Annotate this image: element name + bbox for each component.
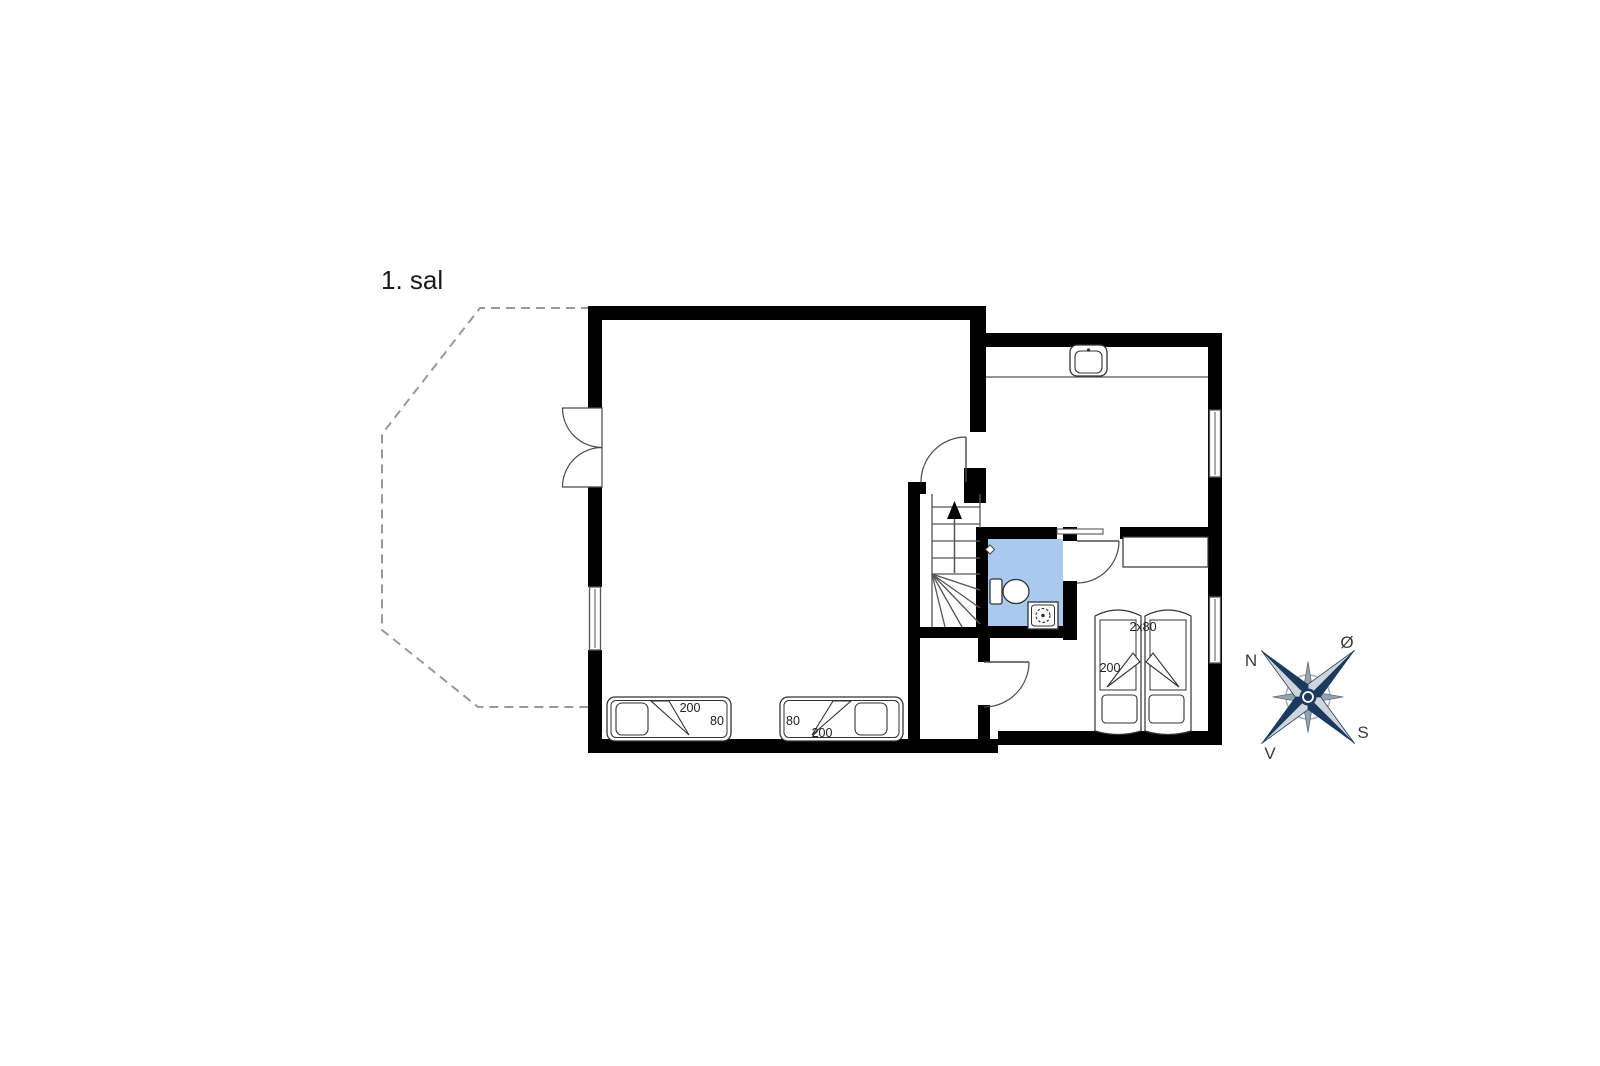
pillow	[616, 703, 648, 735]
wall-segment	[908, 482, 920, 753]
compass-north-label: N	[1245, 651, 1257, 670]
bed-size-label: 2x80	[1129, 620, 1156, 634]
duvet-right	[1149, 695, 1184, 723]
single-bed-2: 80 200	[780, 697, 903, 741]
floor-label: 1. sal	[381, 265, 443, 295]
wall-segment	[978, 705, 990, 745]
floor-plan-canvas: 1. sal	[0, 0, 1600, 1066]
compass-rose: N Ø S V	[1215, 604, 1402, 791]
wall-segment	[970, 306, 986, 432]
duvet-left	[1102, 695, 1137, 723]
kitchen-area	[986, 345, 1208, 377]
bathroom-door-arc	[1077, 541, 1119, 583]
compass-south-label: S	[1357, 723, 1368, 742]
stair-up-arrow-icon	[947, 501, 962, 519]
balcony-door-leaf	[563, 448, 603, 488]
shower-drain-dot	[1041, 614, 1045, 618]
bathroom	[986, 529, 1104, 629]
shelf	[1123, 537, 1208, 567]
bed-width-label: 80	[786, 714, 800, 728]
stair-door-arc	[921, 437, 966, 482]
bed-length-label: 200	[812, 726, 833, 740]
single-bed-1: 200 80	[607, 697, 731, 741]
toilet-bowl-icon	[1003, 580, 1029, 604]
wall-segment	[978, 638, 990, 662]
wall-segment	[976, 527, 1057, 539]
wall-segment	[588, 487, 602, 587]
bed-length-label: 200	[680, 701, 701, 715]
bed-width-label: 80	[710, 714, 724, 728]
sliding-door-track	[1057, 529, 1103, 534]
wall-segment	[908, 627, 984, 638]
floor-plan: 1. sal	[0, 0, 1600, 1066]
bedroom-door-arc	[984, 662, 1029, 707]
wall-segment	[976, 626, 1077, 638]
toilet-tank-icon	[990, 579, 1002, 604]
wall-segment	[588, 306, 602, 408]
compass-east-label: Ø	[1340, 633, 1353, 652]
double-bed: 2x80 200	[1095, 610, 1191, 735]
stairs	[932, 494, 980, 627]
sink-faucet-dot	[1087, 348, 1090, 351]
wall-segment	[588, 650, 602, 753]
pillow	[855, 703, 887, 735]
balcony-door-leaf	[563, 408, 603, 448]
bed-length-label: 200	[1100, 661, 1121, 675]
wall-segment	[588, 306, 986, 320]
compass-west-label: V	[1264, 744, 1276, 763]
balcony-dashed-outline	[382, 308, 590, 707]
wall-segment	[964, 468, 986, 503]
